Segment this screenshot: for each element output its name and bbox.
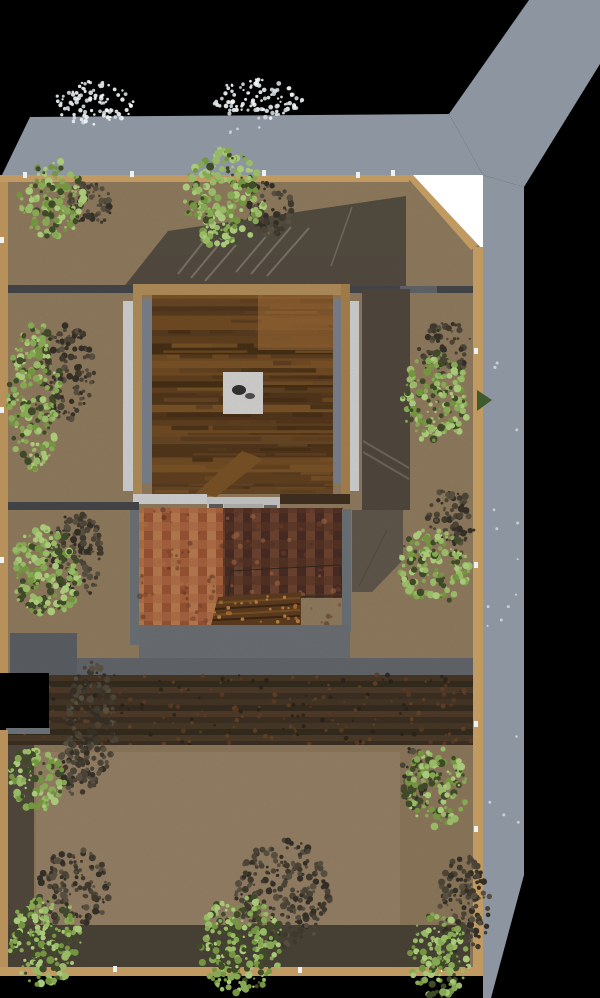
leaf bbox=[235, 880, 242, 887]
leaf bbox=[263, 188, 266, 191]
leaf bbox=[234, 974, 240, 980]
leaf bbox=[49, 226, 56, 233]
road-speckle-dot bbox=[495, 527, 498, 530]
leaf bbox=[248, 931, 251, 934]
leaf bbox=[288, 208, 294, 214]
leaf bbox=[453, 888, 459, 894]
leaf bbox=[227, 939, 232, 944]
leaf bbox=[22, 333, 26, 337]
leaf bbox=[293, 908, 296, 911]
leaf bbox=[25, 749, 31, 755]
leaf bbox=[445, 492, 451, 498]
leaf bbox=[48, 927, 55, 934]
leaf bbox=[250, 84, 253, 87]
leaf bbox=[234, 896, 238, 900]
leaf bbox=[84, 679, 89, 684]
leaf bbox=[437, 329, 440, 332]
leaf bbox=[35, 531, 42, 538]
leaf bbox=[450, 536, 454, 540]
leaf bbox=[15, 797, 17, 799]
leaf bbox=[55, 760, 62, 767]
leaf bbox=[80, 217, 85, 222]
leaf bbox=[218, 214, 226, 222]
leaf bbox=[282, 932, 288, 938]
leaf bbox=[451, 954, 455, 958]
leaf bbox=[450, 367, 458, 375]
leaf bbox=[440, 346, 447, 353]
fence-left-lower bbox=[0, 730, 8, 976]
leaf bbox=[423, 567, 429, 573]
leaf bbox=[66, 932, 71, 937]
leaf bbox=[466, 929, 470, 933]
leaf bbox=[78, 555, 80, 557]
leaf bbox=[87, 728, 94, 735]
leaf bbox=[457, 493, 460, 496]
leaf bbox=[51, 391, 54, 394]
leaf bbox=[286, 102, 289, 105]
leaf bbox=[252, 899, 259, 906]
leaf bbox=[85, 380, 88, 383]
leaf bbox=[20, 599, 22, 601]
leaf bbox=[439, 819, 442, 822]
leaf bbox=[98, 557, 101, 560]
leaf bbox=[486, 913, 491, 918]
leaf bbox=[239, 86, 242, 89]
road-speckle-dot bbox=[517, 558, 519, 560]
leaf bbox=[74, 100, 79, 105]
leaf bbox=[20, 795, 24, 799]
leaf bbox=[411, 964, 414, 967]
leaf bbox=[251, 854, 257, 860]
leaf bbox=[220, 987, 225, 992]
leaf bbox=[450, 401, 456, 407]
road-speckle-dot bbox=[507, 605, 510, 608]
leaf bbox=[72, 116, 76, 120]
leaf bbox=[75, 925, 82, 932]
leaf bbox=[29, 561, 32, 564]
leaf bbox=[56, 373, 61, 378]
leaf bbox=[89, 705, 92, 708]
leaf bbox=[64, 338, 68, 342]
leaf bbox=[56, 526, 60, 530]
leaf bbox=[322, 882, 329, 889]
leaf bbox=[78, 94, 81, 97]
leaf bbox=[213, 971, 219, 977]
leaf bbox=[461, 916, 465, 920]
leaf bbox=[447, 819, 454, 826]
leaf bbox=[406, 384, 409, 387]
leaf bbox=[461, 773, 465, 777]
leaf bbox=[291, 861, 295, 865]
leaf bbox=[90, 772, 96, 778]
leaf bbox=[266, 866, 269, 869]
leaf bbox=[92, 908, 99, 915]
leaf bbox=[81, 370, 84, 373]
leaf bbox=[417, 564, 421, 568]
leaf bbox=[450, 859, 456, 865]
leaf bbox=[415, 814, 418, 817]
leaf bbox=[305, 859, 309, 863]
leaf bbox=[429, 431, 432, 434]
leaf bbox=[40, 190, 43, 193]
leaf bbox=[422, 783, 428, 789]
leaf bbox=[75, 913, 78, 916]
leaf bbox=[216, 922, 219, 925]
leaf bbox=[434, 953, 437, 956]
leaf bbox=[446, 539, 448, 541]
leaf bbox=[443, 431, 446, 434]
leaf bbox=[405, 420, 408, 423]
leaf bbox=[110, 685, 112, 687]
leaf bbox=[75, 555, 77, 557]
leaf bbox=[48, 898, 51, 901]
leaf bbox=[20, 451, 27, 458]
leaf bbox=[76, 175, 79, 178]
leaf bbox=[54, 958, 57, 961]
leaf bbox=[304, 923, 309, 928]
leaf bbox=[66, 568, 69, 571]
road-speckle-top-dot bbox=[258, 126, 261, 129]
leaf bbox=[463, 956, 470, 963]
leaf bbox=[443, 785, 447, 789]
road-speckle-dot bbox=[502, 813, 505, 816]
leaf bbox=[468, 934, 473, 939]
leaf bbox=[285, 921, 290, 926]
leaf bbox=[415, 359, 419, 363]
leaf bbox=[454, 351, 457, 354]
leaf bbox=[74, 731, 78, 735]
fence-left-upper bbox=[0, 182, 8, 673]
leaf bbox=[260, 99, 263, 102]
leaf bbox=[240, 109, 242, 111]
leaf bbox=[271, 852, 278, 859]
leaf bbox=[62, 760, 66, 764]
leaf bbox=[64, 226, 66, 228]
leaf bbox=[88, 914, 91, 917]
leaf bbox=[435, 990, 439, 994]
leaf bbox=[235, 172, 241, 178]
leaf bbox=[436, 529, 441, 534]
leaf bbox=[109, 108, 111, 110]
leaf bbox=[87, 684, 90, 687]
leaf bbox=[86, 720, 89, 723]
leaf bbox=[430, 791, 432, 793]
leaf bbox=[57, 158, 64, 165]
leaf bbox=[446, 325, 452, 331]
leaf bbox=[458, 900, 462, 904]
leaf bbox=[222, 223, 225, 226]
leaf bbox=[54, 336, 57, 339]
leaf bbox=[218, 963, 225, 970]
leaf bbox=[437, 784, 442, 789]
leaf bbox=[102, 901, 105, 904]
leaf bbox=[78, 219, 81, 222]
leaf bbox=[241, 984, 249, 992]
leaf bbox=[89, 544, 93, 548]
leaf bbox=[11, 386, 17, 392]
leaf bbox=[458, 376, 465, 383]
leaf bbox=[84, 90, 87, 93]
leaf bbox=[242, 89, 244, 91]
leaf bbox=[86, 191, 90, 195]
leaf bbox=[416, 969, 419, 972]
leaf bbox=[38, 183, 45, 190]
leaf bbox=[231, 946, 236, 951]
leaf bbox=[270, 881, 276, 887]
leaf bbox=[416, 531, 421, 536]
leaf bbox=[230, 90, 233, 93]
leaf bbox=[231, 84, 234, 87]
leaf bbox=[416, 924, 418, 926]
leaf bbox=[268, 227, 274, 233]
leaf bbox=[97, 665, 104, 672]
leaf bbox=[29, 903, 36, 910]
leaf bbox=[17, 440, 21, 444]
leaf bbox=[443, 960, 446, 963]
leaf bbox=[97, 204, 100, 207]
leaf bbox=[42, 218, 50, 226]
leaf bbox=[438, 417, 440, 419]
leaf bbox=[225, 909, 228, 912]
leaf bbox=[71, 190, 73, 192]
leaf bbox=[62, 529, 64, 531]
leaf bbox=[455, 559, 461, 565]
leaf bbox=[269, 936, 273, 940]
leaf bbox=[103, 684, 109, 690]
leaf bbox=[441, 322, 444, 325]
leaf bbox=[426, 350, 430, 354]
leaf bbox=[51, 442, 56, 447]
leaf bbox=[81, 874, 83, 876]
leaf bbox=[459, 933, 462, 936]
leaf bbox=[411, 776, 417, 782]
leaf bbox=[437, 904, 442, 909]
leaf bbox=[232, 989, 239, 996]
leaf bbox=[54, 533, 61, 540]
leaf bbox=[220, 97, 224, 101]
leaf bbox=[287, 87, 291, 91]
leaf bbox=[253, 218, 259, 224]
leaf bbox=[475, 944, 480, 949]
leaf bbox=[20, 198, 22, 200]
leaf bbox=[60, 339, 64, 343]
leaf bbox=[214, 905, 220, 911]
leaf bbox=[85, 768, 89, 772]
leaf bbox=[35, 545, 42, 552]
leaf bbox=[8, 415, 15, 422]
leaf bbox=[461, 969, 465, 973]
road-speckle-dot bbox=[496, 361, 499, 364]
leaf bbox=[445, 536, 448, 539]
leaf bbox=[50, 347, 57, 354]
leaf bbox=[67, 720, 74, 727]
leaf bbox=[249, 104, 252, 107]
leaf bbox=[74, 408, 79, 413]
leaf bbox=[255, 210, 262, 217]
leaf bbox=[456, 327, 462, 333]
leaf bbox=[451, 591, 458, 598]
leaf bbox=[218, 104, 221, 107]
leaf bbox=[63, 228, 67, 232]
leaf bbox=[71, 92, 75, 96]
leaf bbox=[54, 901, 57, 904]
leaf bbox=[76, 567, 78, 569]
leaf bbox=[75, 215, 78, 218]
leaf bbox=[442, 893, 448, 899]
leaf bbox=[296, 939, 299, 942]
leaf bbox=[423, 534, 431, 542]
leaf bbox=[98, 198, 104, 204]
leaf bbox=[43, 769, 45, 771]
leaf bbox=[276, 874, 279, 877]
leaf bbox=[232, 180, 235, 183]
leaf bbox=[216, 174, 222, 180]
leaf bbox=[85, 368, 89, 372]
leaf bbox=[434, 427, 437, 430]
leaf bbox=[28, 937, 32, 941]
leaf bbox=[110, 731, 115, 736]
leaf bbox=[225, 147, 231, 153]
leaf bbox=[51, 547, 53, 549]
leaf bbox=[424, 384, 429, 389]
leaf bbox=[125, 108, 129, 112]
leaf bbox=[90, 695, 93, 698]
leaf bbox=[78, 108, 82, 112]
leaf bbox=[438, 359, 446, 367]
leaf bbox=[43, 595, 47, 599]
leaf bbox=[33, 803, 40, 810]
leaf bbox=[27, 573, 31, 577]
leaf bbox=[103, 719, 109, 725]
leaf bbox=[422, 805, 426, 809]
leaf bbox=[99, 95, 102, 98]
leaf bbox=[229, 214, 234, 219]
leaf bbox=[51, 577, 55, 581]
leaf bbox=[29, 321, 31, 323]
leaf bbox=[424, 389, 429, 394]
leaf bbox=[274, 962, 281, 969]
leaf bbox=[297, 867, 303, 873]
leaf bbox=[288, 916, 290, 918]
leaf bbox=[75, 875, 79, 879]
leaf bbox=[302, 912, 308, 918]
leaf bbox=[78, 329, 82, 333]
leaf bbox=[431, 393, 436, 398]
leaf bbox=[16, 574, 19, 577]
leaf bbox=[485, 906, 490, 911]
leaf bbox=[300, 100, 302, 102]
leaf bbox=[450, 781, 453, 784]
leaf bbox=[45, 385, 50, 390]
leaf bbox=[57, 600, 62, 605]
leaf bbox=[52, 934, 56, 938]
leaf bbox=[19, 348, 23, 352]
leaf bbox=[436, 498, 440, 502]
leaf bbox=[275, 191, 281, 197]
leaf bbox=[253, 108, 257, 112]
leaf bbox=[261, 917, 267, 923]
leaf bbox=[104, 888, 107, 891]
leaf bbox=[39, 339, 46, 346]
leaf bbox=[47, 426, 50, 429]
leaf bbox=[59, 560, 62, 563]
leaf bbox=[28, 407, 36, 415]
leaf bbox=[458, 784, 460, 786]
leaf bbox=[27, 577, 34, 584]
leaf bbox=[241, 947, 246, 952]
leaf bbox=[92, 550, 94, 552]
leaf bbox=[268, 965, 271, 968]
leaf bbox=[247, 883, 251, 887]
leaf bbox=[31, 219, 38, 226]
leaf bbox=[210, 929, 215, 934]
leaf bbox=[206, 225, 209, 228]
leaf bbox=[240, 893, 243, 896]
leaf bbox=[33, 375, 40, 382]
leaf bbox=[52, 162, 54, 164]
leaf bbox=[436, 334, 442, 340]
leaf bbox=[188, 212, 192, 216]
leaf bbox=[101, 698, 104, 701]
leaf bbox=[267, 96, 271, 100]
leaf bbox=[244, 98, 247, 101]
leaf bbox=[438, 974, 441, 977]
leaf bbox=[69, 860, 73, 864]
leaf bbox=[252, 102, 257, 107]
leaf bbox=[471, 942, 475, 946]
leaf bbox=[70, 210, 74, 214]
leaf bbox=[60, 101, 63, 104]
leaf bbox=[279, 855, 283, 859]
leaf bbox=[80, 789, 86, 795]
leaf bbox=[99, 862, 105, 868]
leaf bbox=[51, 965, 57, 971]
leaf bbox=[56, 976, 60, 980]
leaf bbox=[59, 852, 65, 858]
leaf bbox=[23, 535, 26, 538]
leaf bbox=[475, 870, 479, 874]
leaf bbox=[15, 367, 19, 371]
leaf bbox=[46, 582, 52, 588]
leaf bbox=[79, 189, 86, 196]
leaf bbox=[62, 95, 65, 98]
leaf bbox=[52, 771, 55, 774]
leaf bbox=[83, 402, 86, 405]
leaf bbox=[427, 574, 430, 577]
leaf bbox=[211, 172, 215, 176]
leaf bbox=[282, 875, 286, 879]
leaf bbox=[455, 919, 461, 925]
leaf bbox=[22, 756, 30, 764]
leaf bbox=[28, 535, 31, 538]
leaf bbox=[316, 907, 319, 910]
leaf bbox=[221, 912, 226, 917]
leaf bbox=[461, 905, 466, 910]
leaf bbox=[262, 88, 267, 93]
leaf bbox=[266, 968, 272, 974]
leaf bbox=[73, 193, 77, 197]
leaf bbox=[298, 853, 302, 857]
leaf bbox=[407, 777, 411, 781]
road-speckle-top-dot bbox=[236, 127, 239, 130]
leaf bbox=[307, 896, 313, 902]
leaf bbox=[72, 346, 77, 351]
leaf bbox=[237, 165, 244, 172]
leaf bbox=[259, 847, 265, 853]
leaf bbox=[110, 694, 116, 700]
leaf bbox=[458, 807, 463, 812]
leaf bbox=[34, 572, 42, 580]
